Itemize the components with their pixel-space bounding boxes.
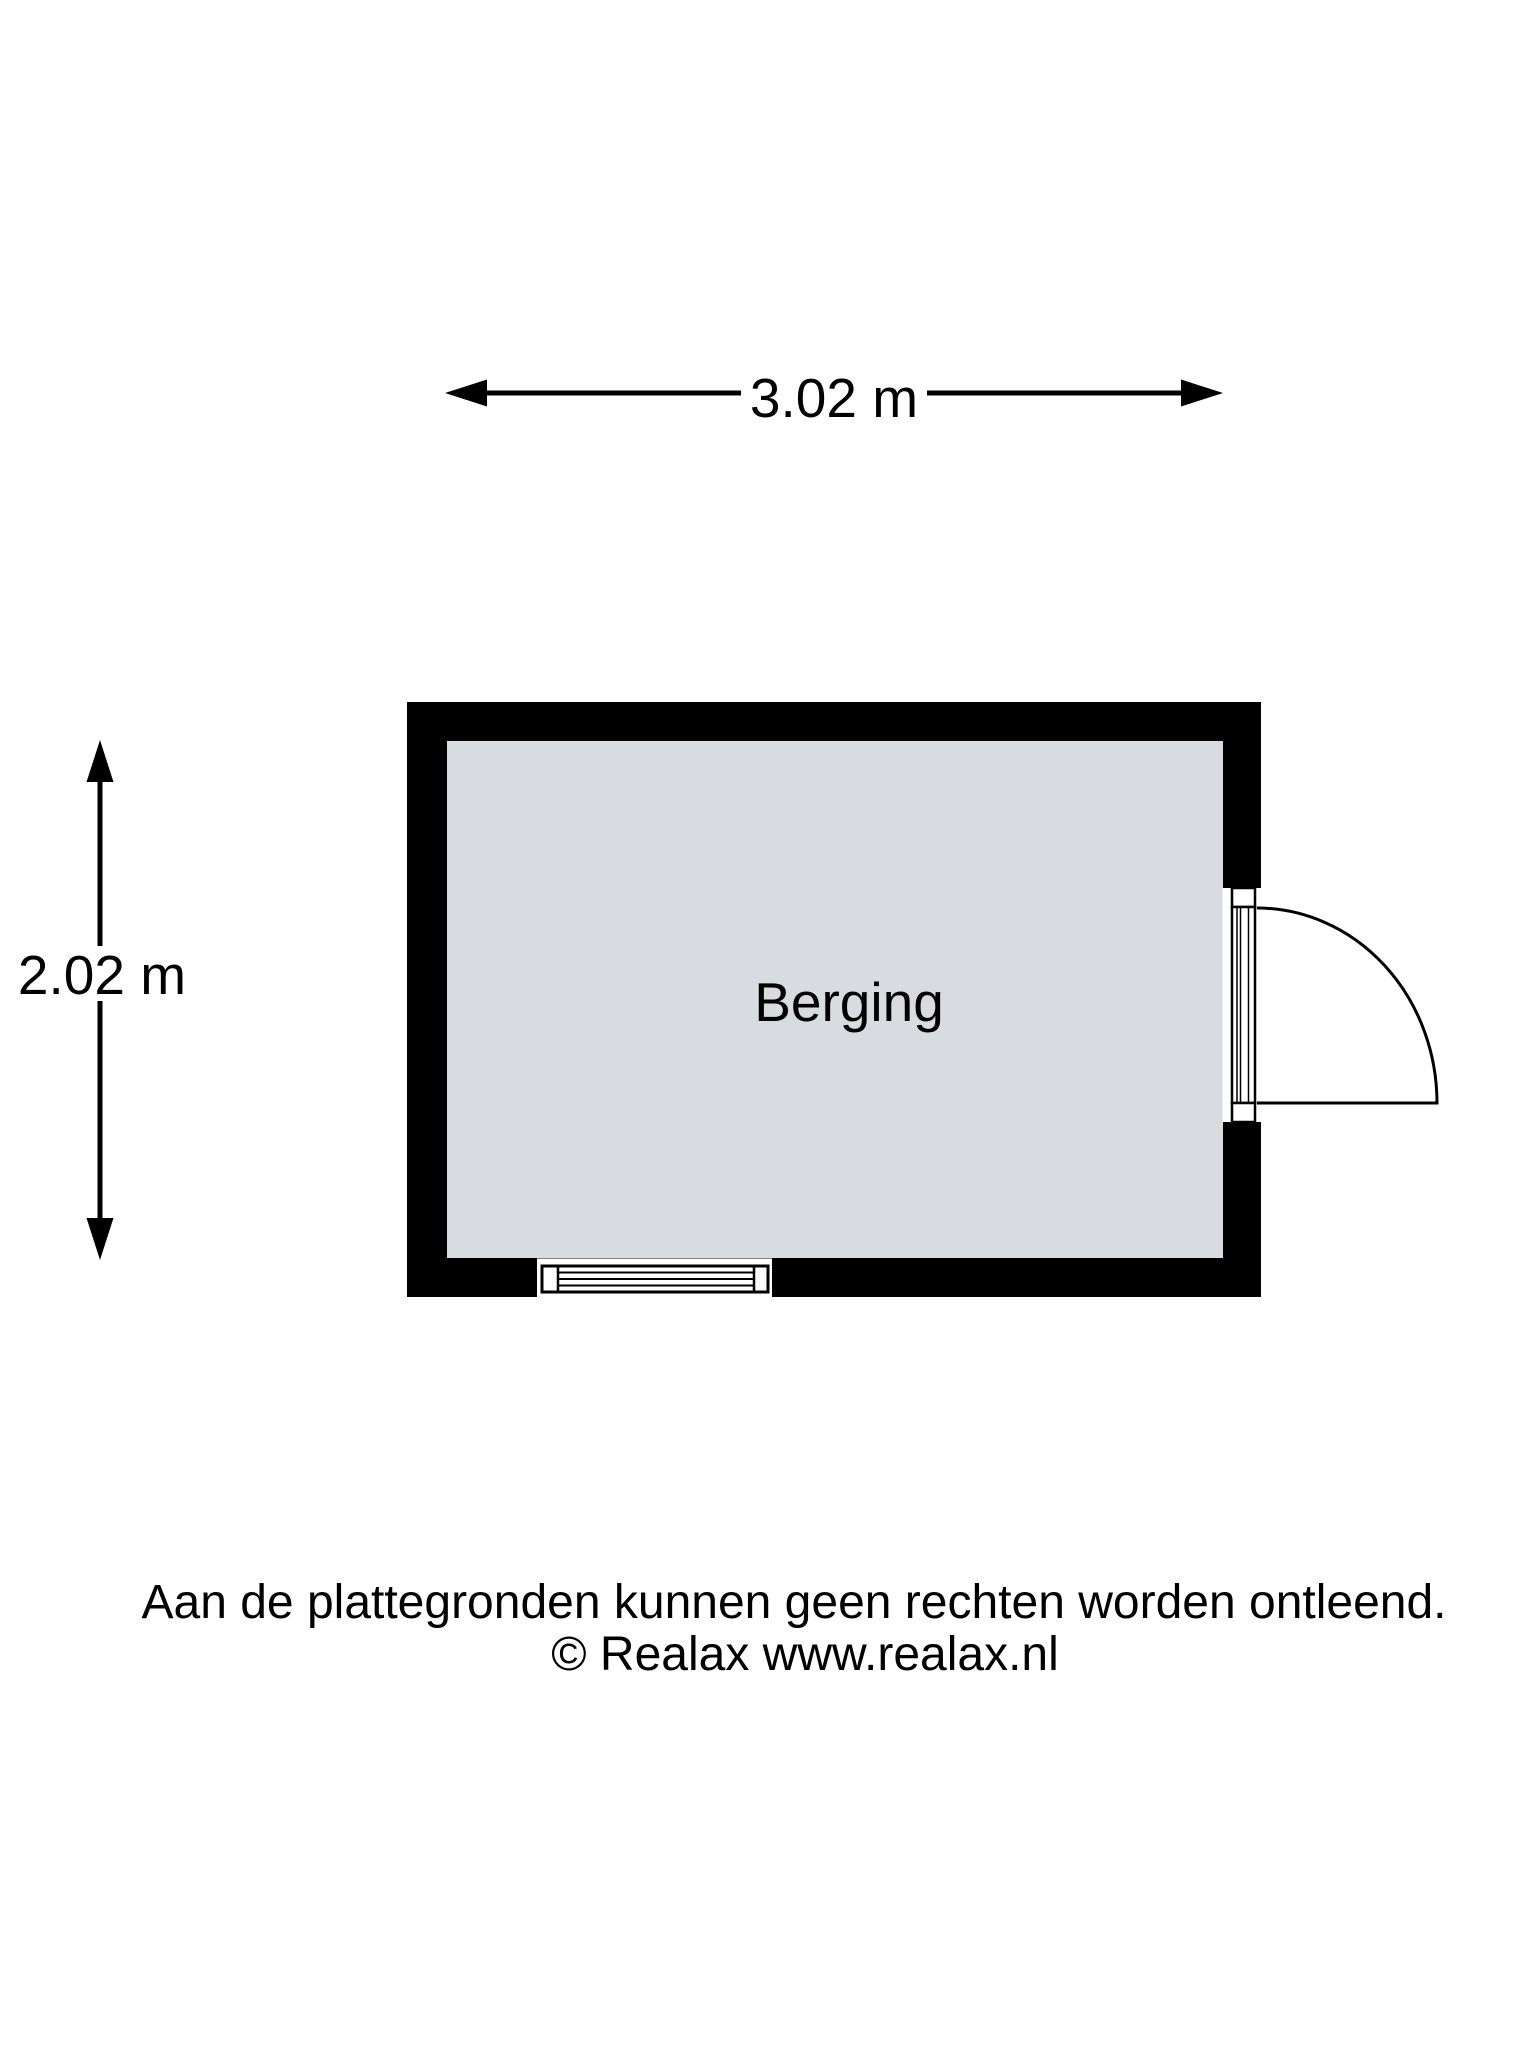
door-swing-arc (1257, 908, 1437, 1103)
footer-copyright: © Realax www.realax.nl (551, 1628, 1059, 1681)
room-berging: Berging (407, 702, 1261, 1297)
room-label: Berging (754, 971, 944, 1033)
footer: Aan de plattegronden kunnen geen rechten… (141, 1576, 1446, 1681)
width-dimension-label: 3.02 m (750, 367, 918, 429)
window (537, 1259, 772, 1298)
door-jamb-top (1232, 888, 1255, 907)
floor-plan-canvas: 3.02 m 2.02 m Berging (0, 0, 1536, 2048)
door (1223, 888, 1438, 1122)
footer-disclaimer: Aan de plattegronden kunnen geen rechten… (141, 1576, 1446, 1629)
arrow-right-icon (1181, 380, 1223, 407)
height-dimension: 2.02 m (18, 740, 186, 1260)
arrow-left-icon (445, 380, 487, 407)
floor-plan-page: 3.02 m 2.02 m Berging (0, 0, 1536, 2048)
width-dimension: 3.02 m (445, 367, 1223, 429)
door-panel (1232, 907, 1255, 1103)
height-dimension-label: 2.02 m (18, 944, 186, 1006)
arrow-down-icon (87, 1218, 114, 1260)
door-jamb-bottom (1232, 1103, 1255, 1122)
arrow-up-icon (87, 740, 114, 782)
